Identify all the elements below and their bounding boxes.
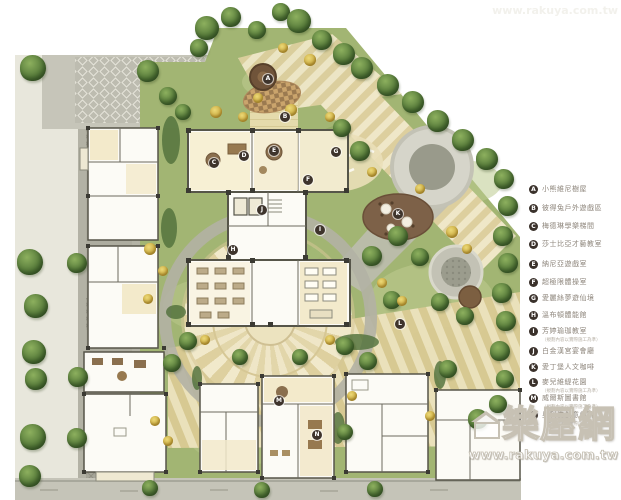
tree xyxy=(67,253,87,273)
shrub xyxy=(462,244,472,254)
tree xyxy=(496,370,514,388)
plan-marker-K: K xyxy=(393,209,403,219)
tree xyxy=(456,307,474,325)
watermark-top-url: www.rakuya.com.tw xyxy=(492,4,618,17)
tree xyxy=(163,354,181,372)
tree xyxy=(24,294,48,318)
plan-marker-E: E xyxy=(269,146,279,156)
plan-marker-L: L xyxy=(395,319,405,329)
shrub xyxy=(253,93,263,103)
tree xyxy=(22,340,46,364)
tree xyxy=(367,481,383,497)
residential-units-left xyxy=(80,126,168,481)
shrub xyxy=(367,167,377,177)
tree xyxy=(195,16,219,40)
plan-marker-A: A xyxy=(263,74,273,84)
plan-marker-G: G xyxy=(331,147,341,157)
shrub xyxy=(163,436,173,446)
tree xyxy=(254,482,270,498)
tree xyxy=(362,246,382,266)
shrub xyxy=(304,54,316,66)
tree xyxy=(350,141,370,161)
shrub xyxy=(425,411,435,421)
shrub xyxy=(278,43,288,53)
plan-marker-J: J xyxy=(257,205,267,215)
plan-marker-F: F xyxy=(303,175,313,185)
tree xyxy=(19,465,41,487)
shrub xyxy=(446,226,458,238)
tree xyxy=(142,480,158,496)
tree xyxy=(431,293,449,311)
tree xyxy=(221,7,241,27)
shrub xyxy=(143,294,153,304)
tree xyxy=(494,169,514,189)
shrub xyxy=(158,266,168,276)
plan-marker-B: B xyxy=(280,112,290,122)
tree xyxy=(25,368,47,390)
rakuya-house-icon xyxy=(471,411,501,440)
tree xyxy=(287,9,311,33)
tree xyxy=(492,283,512,303)
shrub xyxy=(415,184,425,194)
tree xyxy=(159,87,177,105)
shrub xyxy=(144,243,156,255)
shrub xyxy=(325,112,335,122)
site-plan-page: ABCDEFGHIJKLMN A小熊維尼樹屋B彼得兔戶外遊戲區C梅德琳學樂梯間D… xyxy=(0,0,621,500)
tree xyxy=(402,91,424,113)
tree xyxy=(333,119,351,137)
house-body-shape xyxy=(474,422,500,439)
tree xyxy=(496,311,516,331)
tree xyxy=(490,341,510,361)
watermark-brand-text: 樂屋網 xyxy=(502,406,616,445)
plan-marker-I: I xyxy=(315,225,325,235)
plan-marker-N: N xyxy=(312,430,322,440)
shrub xyxy=(325,335,335,345)
tree xyxy=(476,148,498,170)
tree xyxy=(175,104,191,120)
watermark-brand-row: 樂屋網 xyxy=(466,406,621,445)
shrub xyxy=(150,416,160,426)
shrub xyxy=(238,112,248,122)
watermark-url-text: www.rakuya.com.tw xyxy=(466,447,621,462)
tree xyxy=(498,196,518,216)
tree xyxy=(312,30,332,50)
tree xyxy=(20,424,46,450)
tree xyxy=(292,349,308,365)
rakuya-watermark: 樂屋網 www.rakuya.com.tw xyxy=(466,406,621,462)
shrub xyxy=(200,335,210,345)
tree xyxy=(137,60,159,82)
tree xyxy=(179,332,197,350)
tree xyxy=(67,428,87,448)
tree xyxy=(377,74,399,96)
tree xyxy=(359,352,377,370)
tree xyxy=(190,39,208,57)
tree xyxy=(68,367,88,387)
tree xyxy=(20,55,46,81)
plan-marker-D: D xyxy=(239,151,249,161)
tree xyxy=(388,226,408,246)
shrub xyxy=(377,278,387,288)
shrub xyxy=(347,391,357,401)
plan-marker-C: C xyxy=(209,158,219,168)
tree xyxy=(248,21,266,39)
tree xyxy=(411,248,429,266)
tree xyxy=(493,226,513,246)
plan-marker-M: M xyxy=(274,396,284,406)
tree xyxy=(17,249,43,275)
tree xyxy=(452,129,474,151)
tree xyxy=(232,349,248,365)
tree xyxy=(498,253,518,273)
tree xyxy=(427,110,449,132)
shrub xyxy=(210,106,222,118)
shrub xyxy=(397,296,407,306)
tree xyxy=(439,360,457,378)
plan-marker-H: H xyxy=(228,245,238,255)
tree xyxy=(336,337,354,355)
tree xyxy=(351,57,373,79)
tree xyxy=(337,424,353,440)
